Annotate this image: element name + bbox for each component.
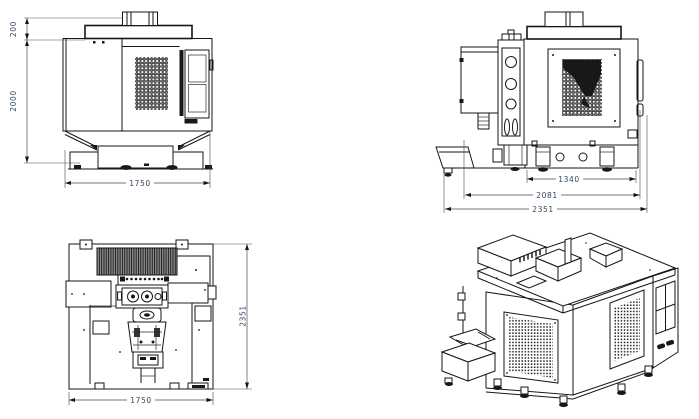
dim-label-2351-plan: 2351 [239, 305, 248, 327]
front-foot-pad [121, 165, 132, 170]
plan-right-arm [168, 283, 208, 303]
isometric-view [442, 233, 678, 407]
plan-view: 2351 1750 [66, 240, 252, 405]
front-base [63, 131, 213, 170]
iso-foot [520, 394, 529, 398]
dim-label-1340: 1340 [558, 175, 580, 184]
side-spindle-cap [545, 12, 583, 27]
front-top-plate [85, 26, 192, 39]
plan-vent-grille [97, 248, 177, 275]
front-foot-pad [167, 165, 178, 170]
side-tool-magazine [498, 30, 524, 145]
iso-foot [644, 373, 653, 377]
side-electrical-cabinet [461, 47, 498, 113]
dim-label-2351-side: 2351 [532, 205, 554, 214]
dim-label-2081: 2081 [536, 191, 558, 200]
iso-left-latches [458, 286, 465, 338]
dim-label-200: 200 [9, 21, 18, 37]
dim-label-1750: 1750 [129, 179, 151, 188]
dim-side-foot-span: 1340 [527, 170, 636, 184]
front-spindle-cap [123, 12, 158, 26]
dim-label-1750-plan: 1750 [130, 396, 152, 405]
front-door-window [185, 50, 209, 118]
side-top-plate [527, 27, 621, 40]
front-door-handle [185, 119, 198, 124]
side-foot-pad [511, 167, 520, 171]
iso-foot [617, 391, 626, 395]
side-foot-pad [602, 167, 612, 171]
side-view: 1340 2081 2351 [436, 12, 647, 214]
side-chip-chute [436, 147, 474, 177]
front-machine-body [63, 12, 213, 131]
dim-label-2000: 2000 [9, 90, 18, 112]
iso-foot [559, 403, 568, 407]
side-foot-pad [538, 167, 548, 171]
dim-plan-depth: 2351 [213, 244, 252, 389]
drawing-sheet: 200 2000 1750 [0, 0, 699, 419]
front-door-seam [180, 50, 184, 116]
front-view: 200 2000 1750 [9, 12, 213, 188]
dim-plan-width: 1750 [69, 392, 213, 405]
multiview-drawing: 200 2000 1750 [0, 0, 699, 419]
front-vent-grid [135, 57, 168, 110]
side-base [436, 141, 638, 177]
side-machine-body [460, 12, 644, 145]
iso-foot [493, 386, 502, 390]
